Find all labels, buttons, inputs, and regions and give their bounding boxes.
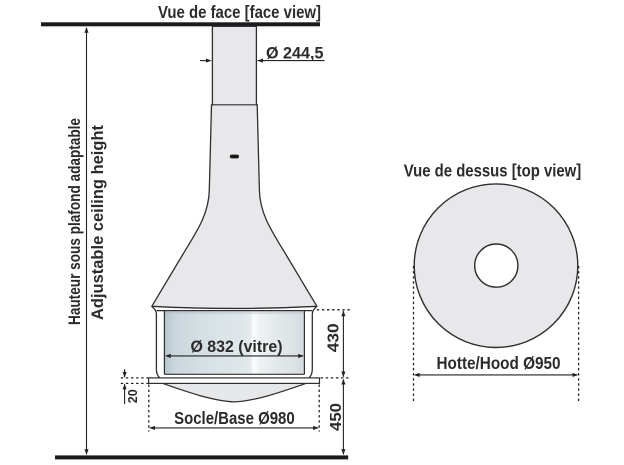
svg-text:Ø 244,5: Ø 244,5 [266, 45, 324, 63]
svg-text:450: 450 [328, 403, 345, 431]
svg-text:Vue de face [face view]: Vue de face [face view] [158, 2, 321, 22]
svg-text:Socle/Base Ø980: Socle/Base Ø980 [174, 408, 295, 428]
svg-text:430: 430 [326, 323, 343, 352]
svg-text:Ø 832 (vitre): Ø 832 (vitre) [191, 337, 283, 356]
svg-text:Vue de dessus [top view]: Vue de dessus [top view] [404, 161, 582, 181]
svg-text:20: 20 [125, 389, 140, 403]
svg-text:Hotte/Hood Ø950: Hotte/Hood Ø950 [437, 353, 561, 373]
svg-text:Adjustable ceiling height: Adjustable ceiling height [88, 125, 107, 320]
svg-text:Hauteur sous plafond adaptable: Hauteur sous plafond adaptable [65, 118, 84, 325]
